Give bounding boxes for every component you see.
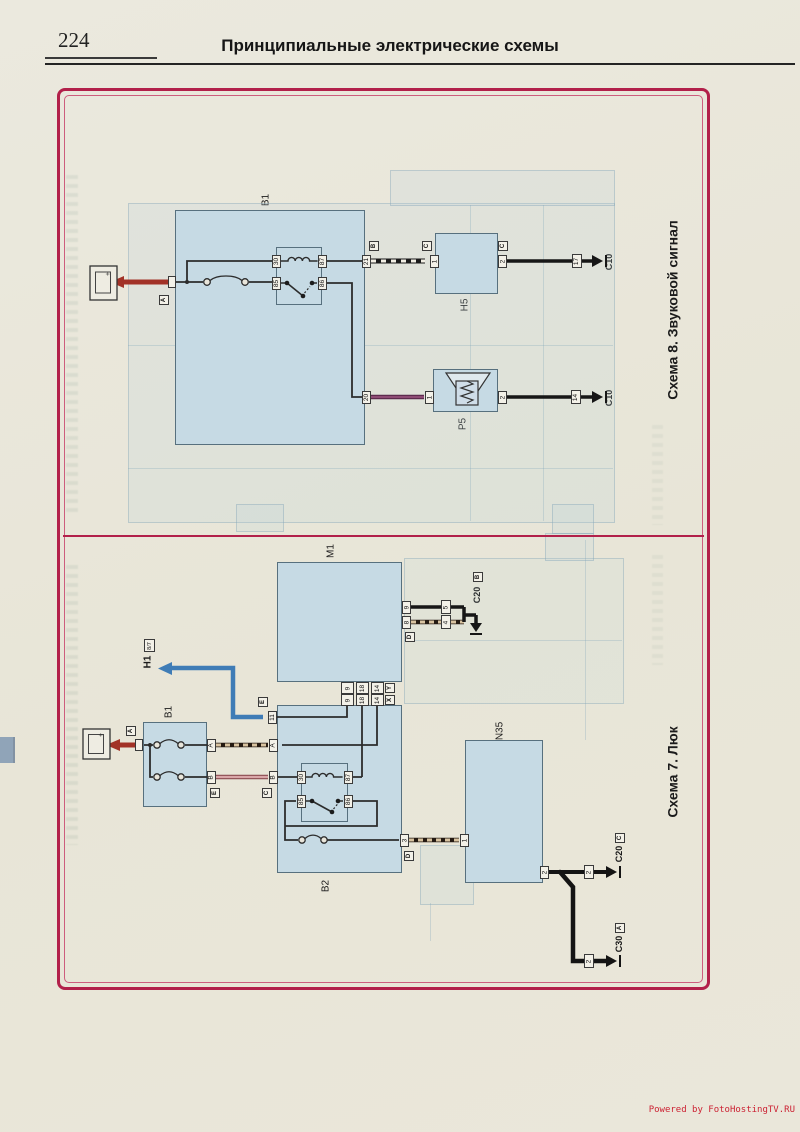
h1-ref-box: 8/7 [144,639,155,652]
terminal-b1-a: A [207,739,216,752]
terminal-p5-2: 2 [498,391,507,404]
connector-17: 17 [572,254,582,268]
scanned-manual-page: 224 Принципиальные электрические схемы [0,0,800,1132]
pin-letter-e-2: E [210,788,220,798]
b2-internal-wiring [277,706,377,777]
fuse-f37-icon [154,772,184,780]
pin-letter-b-c20: B [473,572,483,582]
fuse-f53-icon [154,740,184,748]
pin-letter-c-2: C [262,788,272,798]
pin-letter-a: A [159,295,169,305]
connector-2-top: 2 [584,865,594,879]
wire-n35-grounds [549,870,606,961]
terminal-b2-11: 11 [268,711,277,724]
b1-2-internal-wiring [144,743,207,777]
terminal-r13-87: 87 [344,771,353,784]
terminal-b1-20: 20 [362,391,371,404]
battery-plus-sign: + [105,272,112,276]
terminal-m1-9: 9 [402,601,411,614]
terminal-b2-b: B [269,771,278,784]
fuse-f46-icon [299,835,327,843]
terminal-r3-87: 87 [318,255,327,268]
terminal-m1-8: 8 [402,616,411,629]
pin-letter-d-2: D [404,851,414,861]
pin-letter-c: C [422,241,432,251]
pin-letter-a-2: A [126,726,136,736]
ground-icon-c10-bottom [592,391,606,403]
battery-plus-sign: + [98,733,105,737]
terminal-r13-85: 85 [297,795,306,808]
relay-r3-switch-icon [281,281,317,299]
terminal-b2-x18: 18 [356,694,369,706]
terminal-p5-1: 1 [425,391,434,404]
pin-letter-e: E [258,697,268,707]
connector-2-bottom: 2 [584,954,594,968]
fuse-f10-icon [204,276,249,285]
connector-5: 5 [441,600,451,614]
battery-icon: + [90,266,117,300]
terminal-r3-86: 86 [318,277,327,290]
terminal-h5-2: 2 [498,255,507,268]
terminal-b1-b: B [207,771,216,784]
ground-icon-c10-top [592,255,606,267]
wiring-layer: + [0,0,800,1132]
battery-icon-2: + [83,729,110,759]
pin-letter-x: X [385,695,395,705]
relay-r13-coil-icon [305,773,343,777]
pin-letter-a-c30: A [615,923,625,933]
horn-icon-p5 [446,373,490,405]
battery-feed-wire-red [110,276,175,288]
connector-4: 4 [441,615,451,629]
terminal-r3-85: 85 [272,277,281,290]
terminal-h5-1: 1 [430,255,439,268]
ground-icon-c30 [606,955,620,967]
relay-r3-coil-icon [280,257,318,261]
terminal-m1-y18: 18 [356,682,369,694]
terminal-r3-30: 30 [272,255,281,268]
terminal-b2-x9: 9 [341,694,354,706]
pin-letter-c-c20: C [615,833,625,843]
terminal-notch-b1-a [168,276,176,288]
terminal-m1-y14: 14 [371,682,384,694]
terminal-b2-a: A [269,739,278,752]
pin-letter-y: Y [385,683,395,693]
pin-letter-d: D [405,632,415,642]
pin-letter-c: C [498,241,508,251]
terminal-n35-2: 2 [540,866,549,879]
terminal-notch-b1-2 [135,739,143,751]
wire-h1-blue [158,662,263,717]
connector-14: 14 [571,390,581,404]
terminal-m1-y9: 9 [341,682,354,694]
terminal-r13-30: 30 [297,771,306,784]
ground-icon-c20-n35 [606,866,620,878]
terminal-b2-x14: 14 [371,694,384,706]
terminal-r13-86: 86 [344,795,353,808]
pin-letter-b: B [369,241,379,251]
relay-r13-switch-icon [306,799,343,815]
wire-m1-ground-join [464,607,476,623]
terminal-b2-3: 3 [400,834,409,847]
terminal-n35-1: 1 [460,834,469,847]
terminal-b1-21: 21 [362,255,371,268]
ground-icon-c20-m1 [470,623,482,634]
